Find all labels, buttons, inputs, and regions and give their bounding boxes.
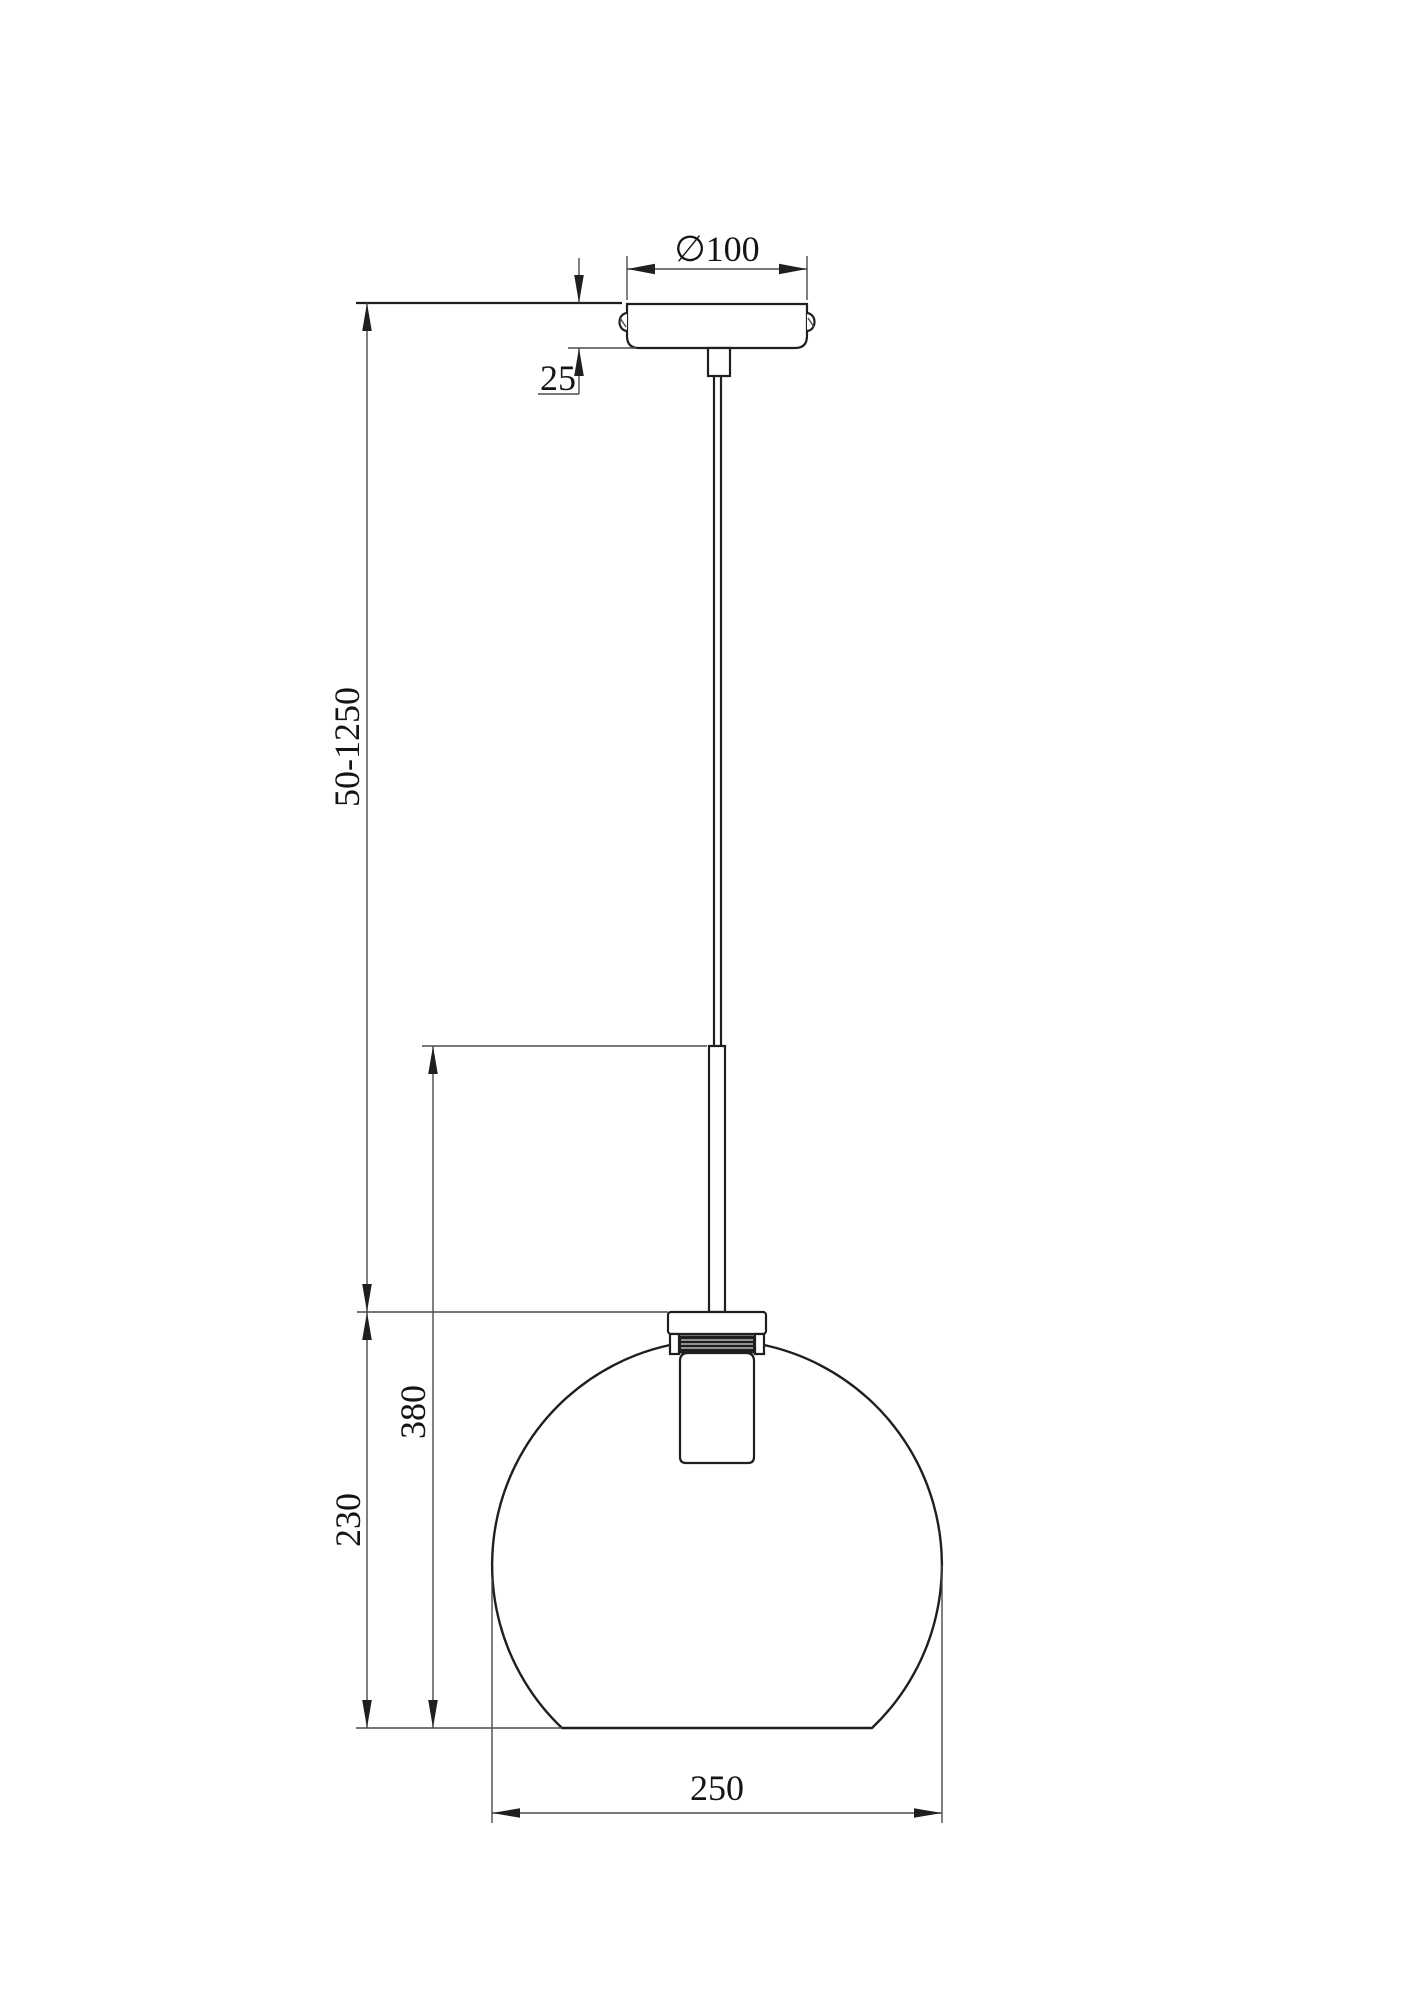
arrow-up-icon [428, 1046, 438, 1074]
canopy [620, 304, 815, 348]
suspension [708, 348, 730, 1312]
arrow-right-icon [779, 264, 807, 274]
dim-fixture-height: 380 [393, 1046, 438, 1728]
stem-rod [709, 1046, 725, 1312]
fixture-height-label: 380 [393, 1385, 433, 1439]
dim-canopy-diameter: ∅100 [627, 229, 807, 300]
cord-grip [708, 348, 730, 376]
arrow-up-icon [362, 1312, 372, 1340]
arrow-down-icon [362, 1284, 372, 1312]
shade-height-label: 230 [328, 1493, 368, 1547]
arrow-left-icon [492, 1808, 520, 1818]
arrow-down-icon [574, 275, 584, 303]
arrow-right-icon [914, 1808, 942, 1818]
arrow-left-icon [627, 264, 655, 274]
arrow-down-icon [362, 1700, 372, 1728]
canopy-diameter-label: ∅100 [674, 229, 759, 269]
arrow-down-icon [428, 1700, 438, 1728]
drawing-canvas: ∅100 25 50-1250 230 380 250 [0, 0, 1413, 2000]
shade-neck-right [755, 1334, 764, 1354]
shade-diameter-label: 250 [690, 1768, 744, 1808]
canopy-body [627, 304, 807, 348]
shade-neck-left [670, 1334, 679, 1354]
socket-cap [668, 1312, 766, 1334]
dim-shade-height: 230 [328, 1312, 372, 1728]
socket-assembly [668, 1312, 766, 1463]
technical-drawing: ∅100 25 50-1250 230 380 250 [0, 0, 1413, 2000]
canopy-height-label: 25 [540, 358, 576, 398]
lamp-socket [680, 1353, 754, 1463]
arrow-up-icon [362, 303, 372, 331]
suspension-length-label: 50-1250 [327, 687, 367, 807]
dim-shade-diameter: 250 [492, 1565, 942, 1823]
